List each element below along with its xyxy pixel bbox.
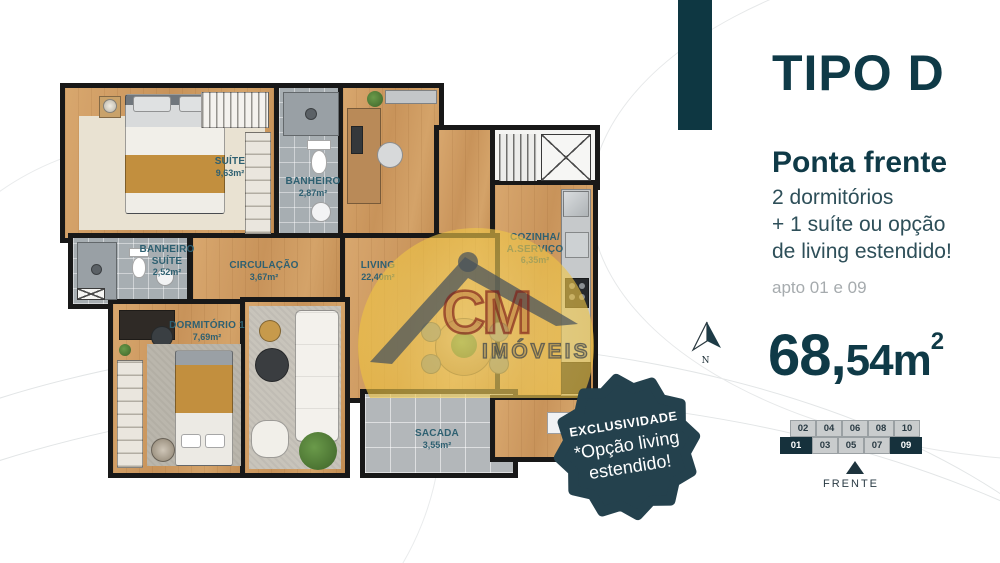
description: 2 dormitórios + 1 suíte ou opção de livi…: [772, 184, 952, 265]
unit-cell-10: 10: [894, 420, 920, 437]
unit-cell-05: 05: [838, 437, 864, 454]
office-chair: [377, 142, 403, 168]
unit-cell-09: 09: [890, 437, 922, 454]
banheiro-drain-icon: [305, 108, 317, 120]
building-diagram: 0204060810 0103050709: [780, 420, 922, 454]
apto-note: apto 01 e 09: [772, 278, 867, 298]
banheiro-toilet-tank: [307, 140, 331, 150]
total-area: 68,54m2: [768, 322, 943, 389]
stove-burner: [569, 294, 575, 300]
banheiro-suite-duct: [77, 288, 105, 300]
label-circulacao: CIRCULAÇÃO 3,67m²: [219, 260, 309, 283]
office-shelf: [385, 90, 437, 104]
description-line: + 1 suíte ou opção: [772, 211, 952, 238]
stove-burner: [569, 283, 575, 289]
dorm-wardrobe: [117, 360, 143, 468]
label-living: LIVING 22,40m²: [333, 260, 423, 283]
armchair: [251, 420, 289, 458]
north-arrow-icon: [683, 320, 728, 356]
dorm-pouf: [151, 438, 175, 462]
unit-cell-04: 04: [816, 420, 842, 437]
front-label: FRENTE: [806, 478, 896, 490]
dining-plant-icon: [451, 332, 477, 358]
office-plant-icon: [367, 91, 383, 107]
subtitle: Ponta frente: [772, 146, 947, 180]
dining-chair: [421, 354, 441, 374]
living-plant-icon: [299, 432, 337, 470]
label-cozinha: COZINHA/ A.SERVIÇO 6,35m²: [490, 232, 580, 266]
unit-cell-07: 07: [864, 437, 890, 454]
description-line: de living estendido!: [772, 238, 952, 265]
kitchen-glass-panel: [563, 191, 589, 217]
badge-text: EXCLUSIVIDADE *Opção living estendido!: [537, 357, 718, 538]
suite-closet: [201, 92, 269, 128]
label-suite: SUÍTE 9,63m²: [185, 156, 275, 179]
front-triangle-icon: [846, 461, 864, 474]
stairs-icon: [499, 134, 537, 181]
floor-plan: SUÍTE 9,63m² BANHEIRO 2,87m² BANHEIRO SU…: [55, 82, 605, 477]
unit-cell-06: 06: [842, 420, 868, 437]
exclusivity-badge: EXCLUSIVIDADE *Opção living estendido!: [537, 357, 718, 538]
banheiro-toilet-icon: [311, 150, 327, 174]
label-banheiro-suite: BANHEIRO SUÍTE 2,52m²: [122, 244, 212, 278]
room-entry-hall: [439, 130, 495, 238]
unit-cell-08: 08: [868, 420, 894, 437]
dorm-pillow: [181, 434, 201, 448]
dining-chair: [489, 322, 509, 342]
accent-bar: [678, 0, 712, 130]
stove-burner: [579, 283, 585, 289]
building-row-lower: 0103050709: [780, 437, 922, 454]
office-monitor: [351, 126, 363, 154]
label-sacada: SACADA 3,55m²: [392, 428, 482, 451]
kitchen-stove-icon: [565, 278, 589, 308]
area-minor: 54m: [846, 336, 931, 385]
stove-burner: [579, 294, 585, 300]
elevator-icon: [541, 134, 591, 181]
unit-cell-01: 01: [780, 437, 812, 454]
page-title: TIPO D: [772, 44, 945, 102]
banheiro-sink-icon: [311, 202, 331, 222]
dorm-plant-icon: [119, 344, 131, 356]
dorm-pillow: [205, 434, 225, 448]
dining-chair: [421, 322, 441, 342]
area-superscript: 2: [931, 328, 943, 355]
description-line: 2 dormitórios: [772, 184, 952, 211]
label-dormitorio1: DORMITÓRIO 1 7,69m²: [157, 320, 257, 343]
suite-pillow-left: [133, 96, 171, 112]
flyer-canvas: SUÍTE 9,63m² BANHEIRO 2,87m² BANHEIRO SU…: [0, 0, 1000, 563]
building-row-upper: 0204060810: [790, 420, 922, 437]
banheiro-suite-drain-icon: [91, 264, 102, 275]
unit-cell-03: 03: [812, 437, 838, 454]
coffee-table: [255, 348, 289, 382]
sofa: [295, 310, 339, 442]
dorm-bed: [175, 350, 233, 466]
unit-cell-02: 02: [790, 420, 816, 437]
dining-chair: [489, 354, 509, 374]
side-table: [259, 320, 281, 342]
suite-lamp-left: [103, 99, 117, 113]
area-major: 68,: [768, 323, 846, 388]
label-banheiro: BANHEIRO 2,87m²: [268, 176, 358, 199]
compass: N: [683, 320, 728, 361]
